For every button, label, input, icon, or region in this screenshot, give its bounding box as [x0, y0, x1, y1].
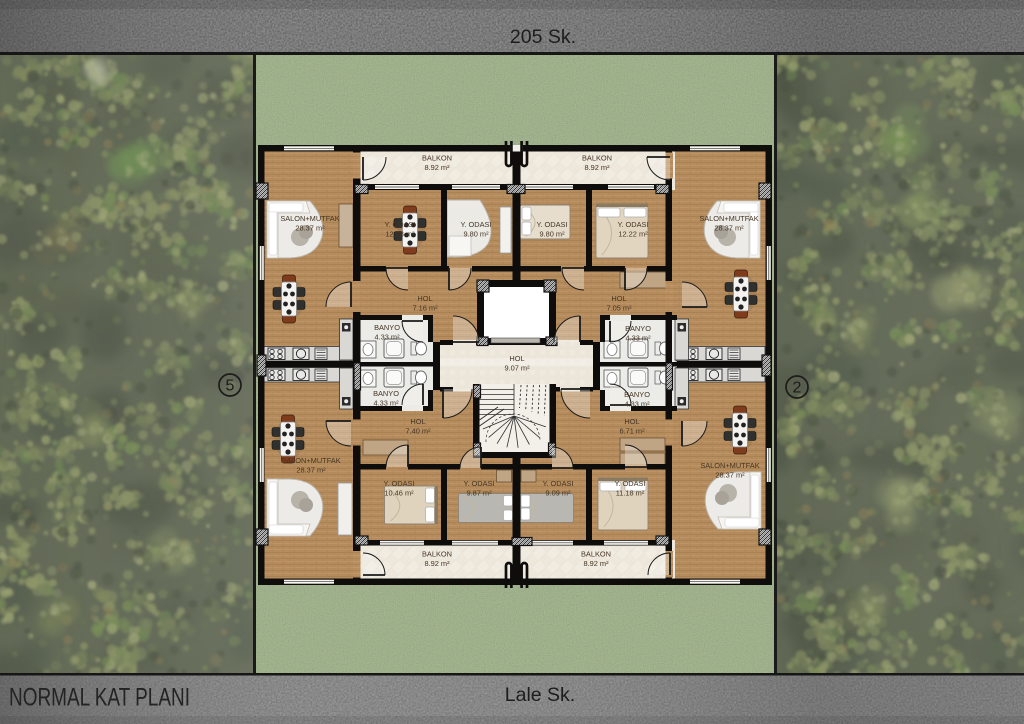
svg-text:8.92 m²: 8.92 m²	[424, 163, 450, 172]
svg-text:28.37 m²: 28.37 m²	[296, 466, 326, 475]
svg-text:Y. ODASI: Y. ODASI	[536, 220, 567, 229]
svg-text:NORMAL KAT PLANI: NORMAL KAT PLANI	[9, 684, 190, 712]
svg-text:BANYO: BANYO	[624, 390, 650, 399]
svg-text:4.33 m²: 4.33 m²	[624, 400, 650, 409]
svg-text:BALKON: BALKON	[581, 550, 611, 559]
svg-text:9.09 m²: 9.09 m²	[545, 489, 571, 498]
svg-text:BALKON: BALKON	[582, 154, 612, 163]
svg-text:2: 2	[793, 380, 802, 397]
svg-text:BALKON: BALKON	[422, 550, 452, 559]
svg-text:Y. ODASI: Y. ODASI	[617, 220, 648, 229]
svg-text:Y. ODASI: Y. ODASI	[460, 220, 491, 229]
svg-text:HOL: HOL	[624, 417, 639, 426]
svg-text:205 Sk.: 205 Sk.	[510, 26, 576, 48]
svg-text:7.16 m²: 7.16 m²	[412, 304, 438, 313]
svg-text:8.92 m²: 8.92 m²	[424, 559, 450, 568]
svg-text:Y. ODASI: Y. ODASI	[463, 479, 494, 488]
svg-text:BANYO: BANYO	[374, 323, 400, 332]
svg-text:28.37 m²: 28.37 m²	[715, 471, 745, 480]
svg-text:HOL: HOL	[410, 417, 425, 426]
svg-text:SALON+MUTFAK: SALON+MUTFAK	[281, 456, 340, 465]
svg-text:9.80 m²: 9.80 m²	[539, 230, 565, 239]
svg-text:6.71 m²: 6.71 m²	[619, 427, 645, 436]
svg-text:BANYO: BANYO	[373, 389, 399, 398]
svg-text:4.33 m²: 4.33 m²	[625, 334, 651, 343]
svg-text:BANYO: BANYO	[625, 324, 651, 333]
svg-text:28.37 m²: 28.37 m²	[295, 224, 325, 233]
svg-text:4.33 m²: 4.33 m²	[374, 333, 400, 342]
svg-text:HOL: HOL	[509, 354, 524, 363]
svg-text:11.18 m²: 11.18 m²	[616, 489, 645, 498]
svg-text:4.33 m²: 4.33 m²	[373, 399, 399, 408]
svg-text:Y. ODASI: Y. ODASI	[614, 479, 645, 488]
svg-text:Lale Sk.: Lale Sk.	[505, 684, 575, 706]
svg-text:Y. ODASI: Y. ODASI	[384, 220, 415, 229]
svg-text:SALON+MUTFAK: SALON+MUTFAK	[700, 461, 759, 470]
svg-text:12.22 m²: 12.22 m²	[618, 230, 648, 239]
svg-text:8.92 m²: 8.92 m²	[584, 163, 610, 172]
svg-text:5: 5	[226, 378, 235, 395]
svg-text:9.07 m²: 9.07 m²	[504, 364, 530, 373]
svg-text:9.80 m²: 9.80 m²	[463, 230, 489, 239]
svg-text:12.28 m²: 12.28 m²	[385, 230, 415, 239]
svg-text:8.92 m²: 8.92 m²	[583, 559, 609, 568]
svg-text:Y. ODASI: Y. ODASI	[383, 479, 414, 488]
svg-text:9.87 m²: 9.87 m²	[466, 489, 492, 498]
svg-text:7.05 m²: 7.05 m²	[606, 304, 632, 313]
svg-text:HOL: HOL	[611, 294, 626, 303]
svg-text:SALON+MUTFAK: SALON+MUTFAK	[699, 214, 758, 223]
svg-text:HOL: HOL	[417, 294, 432, 303]
svg-text:BALKON: BALKON	[422, 154, 452, 163]
svg-text:28.37 m²: 28.37 m²	[714, 224, 744, 233]
svg-text:10.46 m²: 10.46 m²	[384, 489, 414, 498]
svg-text:SALON+MUTFAK: SALON+MUTFAK	[280, 214, 339, 223]
svg-text:Y. ODASI: Y. ODASI	[542, 479, 573, 488]
svg-text:7.40 m²: 7.40 m²	[405, 427, 431, 436]
